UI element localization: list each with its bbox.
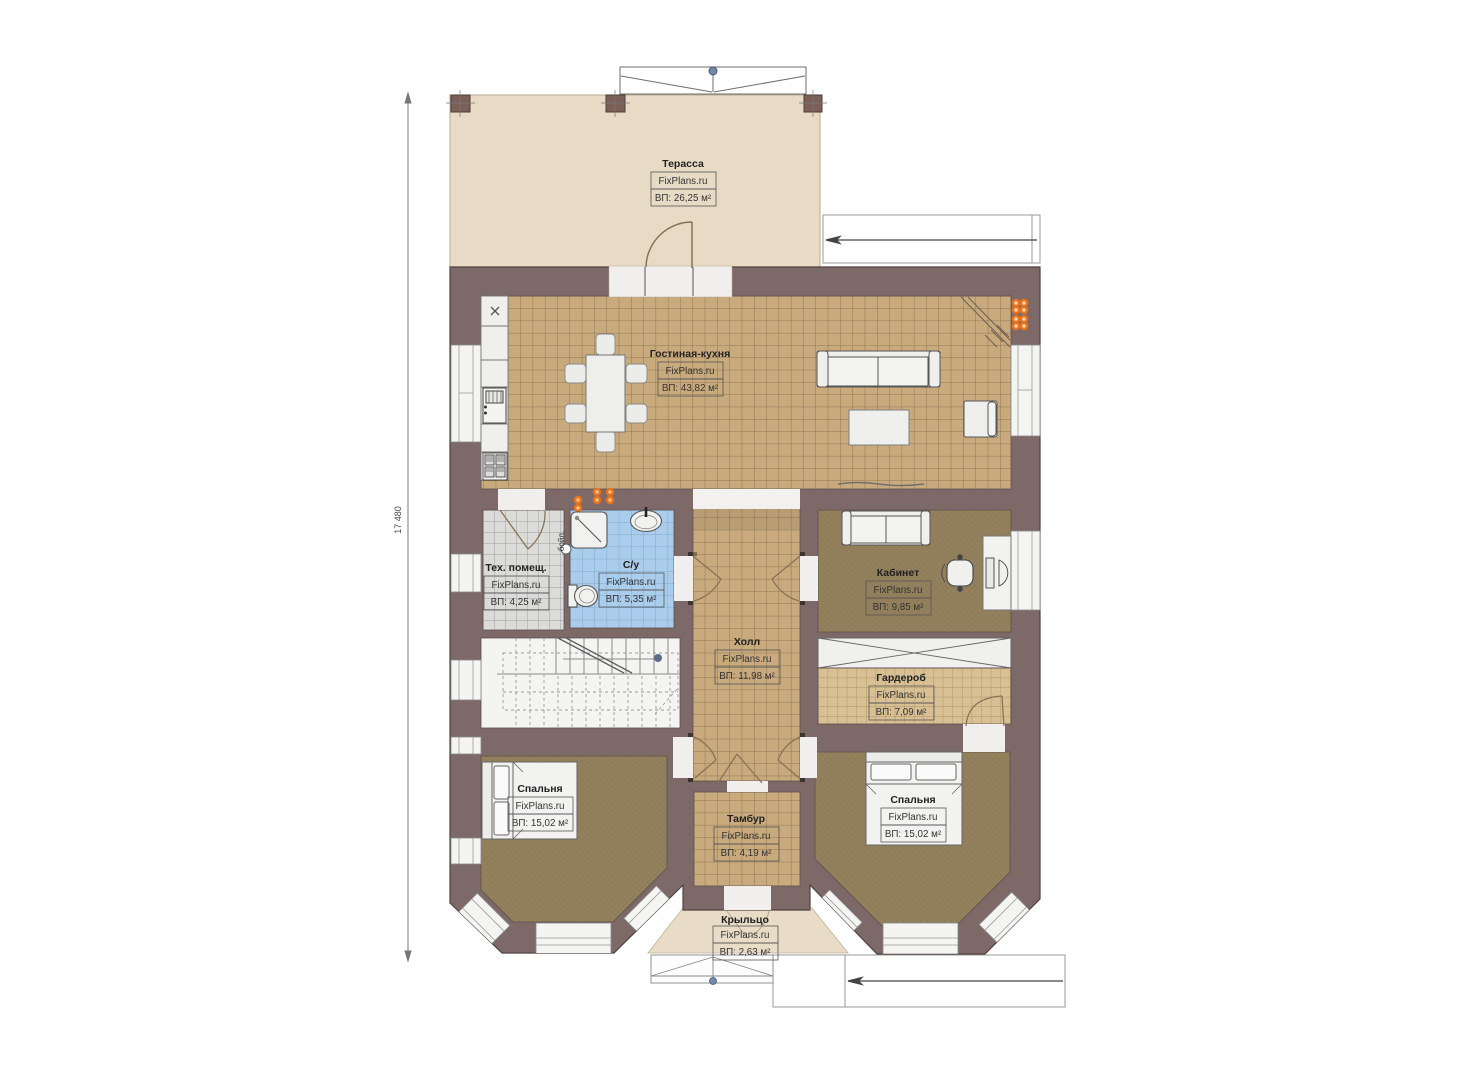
svg-text:Тамбур: Тамбур [727,813,765,825]
svg-text:ВП: 7,09 м²: ВП: 7,09 м² [876,707,928,718]
svg-text:FixPlans.ru: FixPlans.ru [516,801,565,812]
svg-text:Тех. помещ.: Тех. помещ. [485,562,546,574]
svg-text:FixPlans.ru: FixPlans.ru [721,930,770,941]
svg-text:ВП: 15,02 м²: ВП: 15,02 м² [512,818,569,829]
svg-text:Спальня: Спальня [517,783,562,795]
svg-text:Кабинет: Кабинет [877,567,920,579]
svg-text:ВП: 9,85 м²: ВП: 9,85 м² [873,602,925,613]
svg-text:FixPlans.ru: FixPlans.ru [492,580,541,591]
svg-text:Гостиная-кухня: Гостиная-кухня [650,348,730,360]
svg-text:ВП: 4,25 м²: ВП: 4,25 м² [491,597,543,608]
svg-text:Гардероб: Гардероб [876,672,926,684]
svg-text:17 480: 17 480 [393,506,403,534]
svg-text:ВП: 11,98 м²: ВП: 11,98 м² [719,671,775,682]
svg-text:бойл.: бойл. [557,531,566,551]
svg-text:FixPlans.ru: FixPlans.ru [889,812,938,823]
svg-text:Холл: Холл [734,636,760,648]
svg-text:ВП: 15,02 м²: ВП: 15,02 м² [885,829,942,840]
svg-text:FixPlans.ru: FixPlans.ru [722,831,771,842]
svg-text:Терасса: Терасса [662,158,704,170]
svg-text:ВП: 5,35 м²: ВП: 5,35 м² [606,594,658,605]
svg-text:Крыльцо: Крыльцо [721,914,769,926]
svg-text:FixPlans.ru: FixPlans.ru [659,176,708,187]
svg-text:ВП: 26,25 м²: ВП: 26,25 м² [655,193,712,204]
svg-text:Спальня: Спальня [890,794,935,806]
svg-text:FixPlans.ru: FixPlans.ru [607,577,656,588]
svg-text:ВП: 4,19 м²: ВП: 4,19 м² [721,848,773,859]
svg-text:FixPlans.ru: FixPlans.ru [723,654,772,665]
svg-text:ВП: 43,82 м²: ВП: 43,82 м² [662,383,719,394]
svg-text:FixPlans.ru: FixPlans.ru [877,690,926,701]
svg-text:С/у: С/у [623,559,640,571]
svg-text:ВП: 2,63 м²: ВП: 2,63 м² [720,947,772,958]
svg-text:FixPlans.ru: FixPlans.ru [874,585,923,596]
svg-text:FixPlans.ru: FixPlans.ru [666,366,715,377]
